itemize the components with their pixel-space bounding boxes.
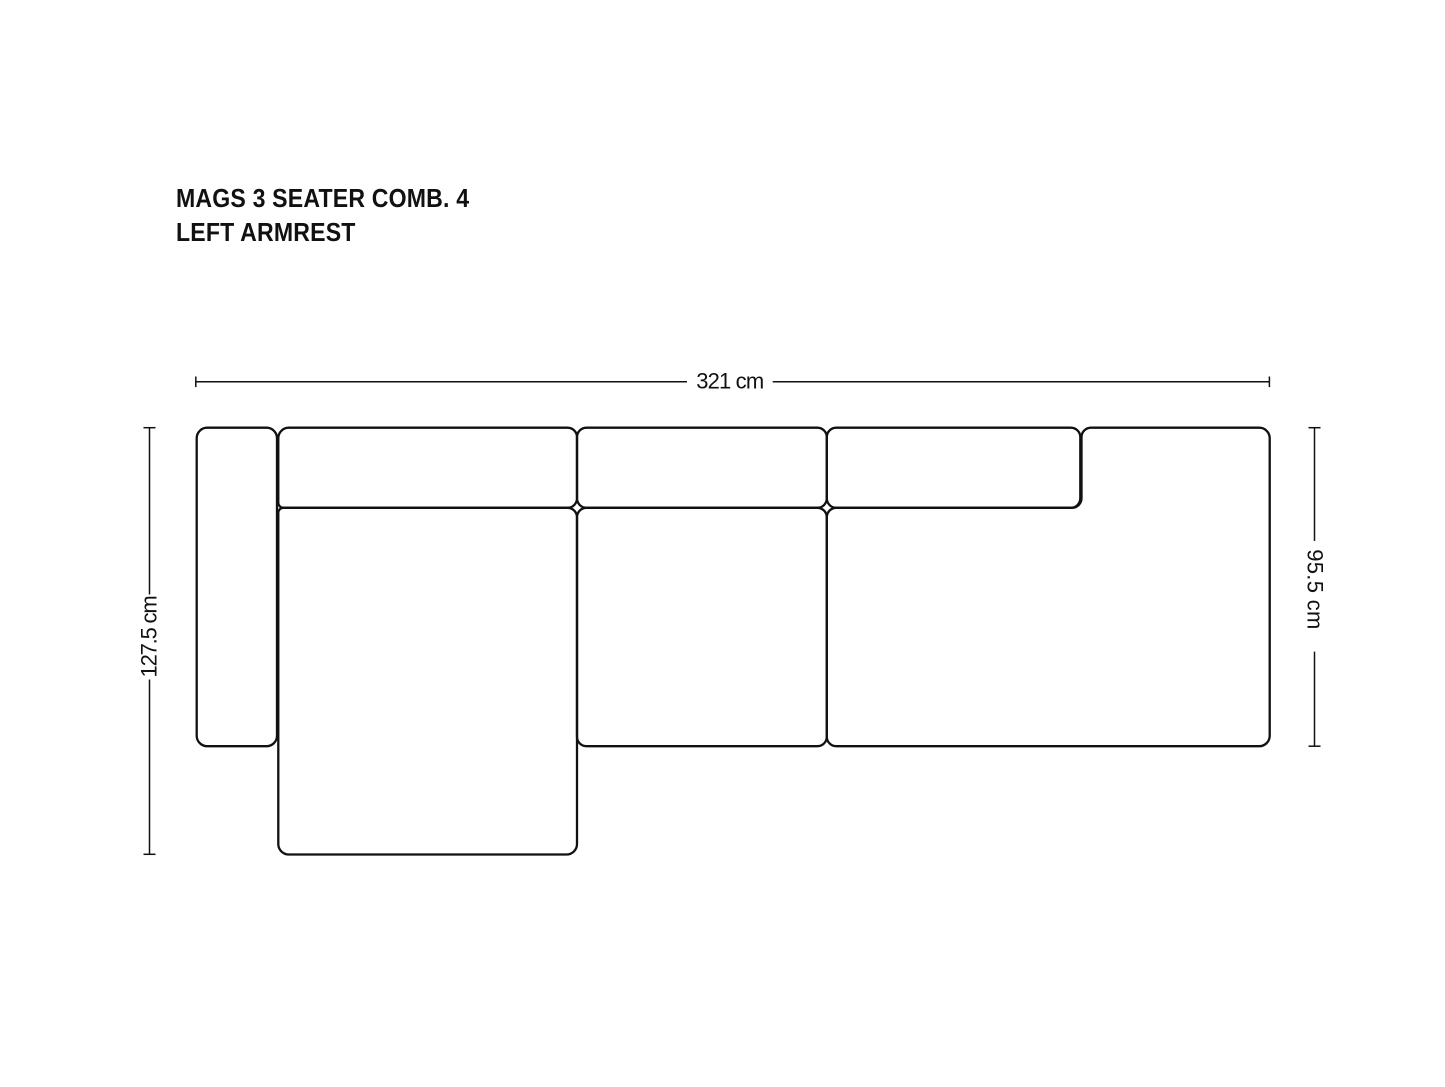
svg-text:127.5 cm: 127.5 cm	[137, 597, 162, 678]
svg-text:321 cm: 321 cm	[696, 369, 763, 394]
svg-text:95.5 cm: 95.5 cm	[1302, 549, 1327, 629]
